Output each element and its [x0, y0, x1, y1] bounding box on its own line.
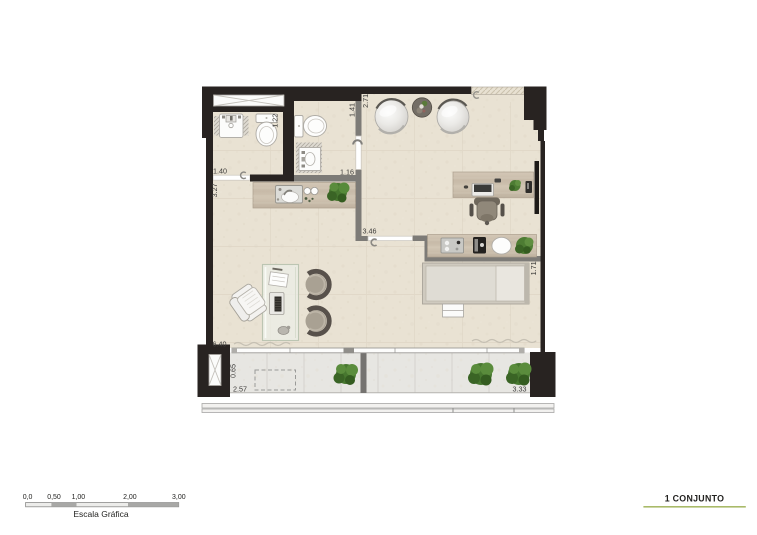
svg-text:1.16: 1.16	[340, 168, 354, 177]
svg-text:3.46: 3.46	[363, 227, 377, 236]
svg-text:3.27: 3.27	[210, 183, 219, 197]
svg-text:0,50: 0,50	[47, 494, 61, 501]
svg-text:0.65: 0.65	[228, 364, 237, 378]
svg-text:2.57: 2.57	[233, 385, 247, 394]
svg-text:2.71: 2.71	[361, 94, 370, 108]
svg-text:1.41: 1.41	[347, 103, 356, 117]
svg-text:3,00: 3,00	[172, 494, 186, 501]
svg-text:1.71: 1.71	[529, 261, 538, 275]
svg-text:2,00: 2,00	[123, 494, 137, 501]
svg-text:1.22: 1.22	[271, 114, 280, 128]
svg-text:3.33: 3.33	[513, 385, 527, 394]
svg-text:1 CONJUNTO: 1 CONJUNTO	[665, 494, 725, 504]
svg-text:0,0: 0,0	[23, 494, 33, 501]
svg-text:1,00: 1,00	[72, 494, 86, 501]
svg-text:1.40: 1.40	[213, 167, 227, 176]
svg-text:Escala Gráfica: Escala Gráfica	[73, 509, 129, 519]
svg-text:6.40: 6.40	[213, 340, 227, 349]
